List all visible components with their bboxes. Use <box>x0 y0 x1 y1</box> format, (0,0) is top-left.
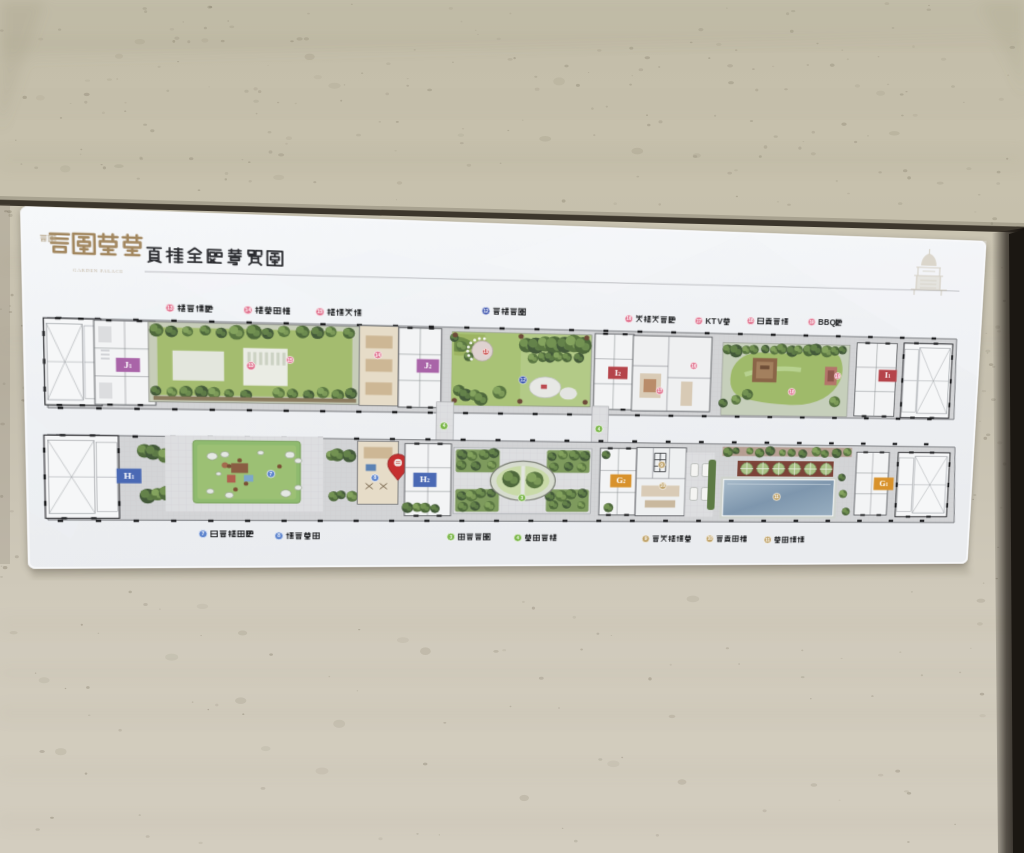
svg-text:10: 10 <box>660 484 665 489</box>
svg-text:19: 19 <box>809 320 814 325</box>
svg-text:4: 4 <box>516 536 519 541</box>
svg-text:13: 13 <box>167 306 173 312</box>
svg-text:7: 7 <box>270 472 273 477</box>
svg-text:4: 4 <box>598 427 601 432</box>
svg-text:9: 9 <box>660 463 663 468</box>
svg-text:11: 11 <box>765 538 770 543</box>
svg-text:13: 13 <box>248 364 254 369</box>
svg-text:8: 8 <box>374 476 377 481</box>
svg-text:3: 3 <box>521 496 524 501</box>
svg-text:15: 15 <box>317 310 323 316</box>
svg-text:9: 9 <box>644 537 647 542</box>
svg-text:14: 14 <box>375 353 380 358</box>
svg-text:15: 15 <box>287 358 293 363</box>
svg-text:19: 19 <box>835 374 840 379</box>
svg-text:3: 3 <box>450 535 453 540</box>
svg-text:16: 16 <box>691 364 696 369</box>
svg-text:T: T <box>711 317 717 326</box>
svg-text:7: 7 <box>202 532 205 537</box>
svg-text:4: 4 <box>443 424 446 429</box>
svg-text:18: 18 <box>748 319 753 324</box>
svg-text:Q: Q <box>829 318 835 327</box>
svg-text:10: 10 <box>707 537 712 542</box>
svg-text:8: 8 <box>278 534 281 539</box>
svg-text:16: 16 <box>626 317 631 322</box>
svg-text:18: 18 <box>789 390 794 395</box>
svg-text:12: 12 <box>483 309 488 314</box>
svg-text:17: 17 <box>696 319 701 324</box>
svg-text:11: 11 <box>774 495 779 500</box>
svg-text:17: 17 <box>657 389 662 394</box>
svg-text:12: 12 <box>520 378 525 383</box>
svg-text:10: 10 <box>483 350 488 355</box>
svg-text:14: 14 <box>245 308 251 314</box>
